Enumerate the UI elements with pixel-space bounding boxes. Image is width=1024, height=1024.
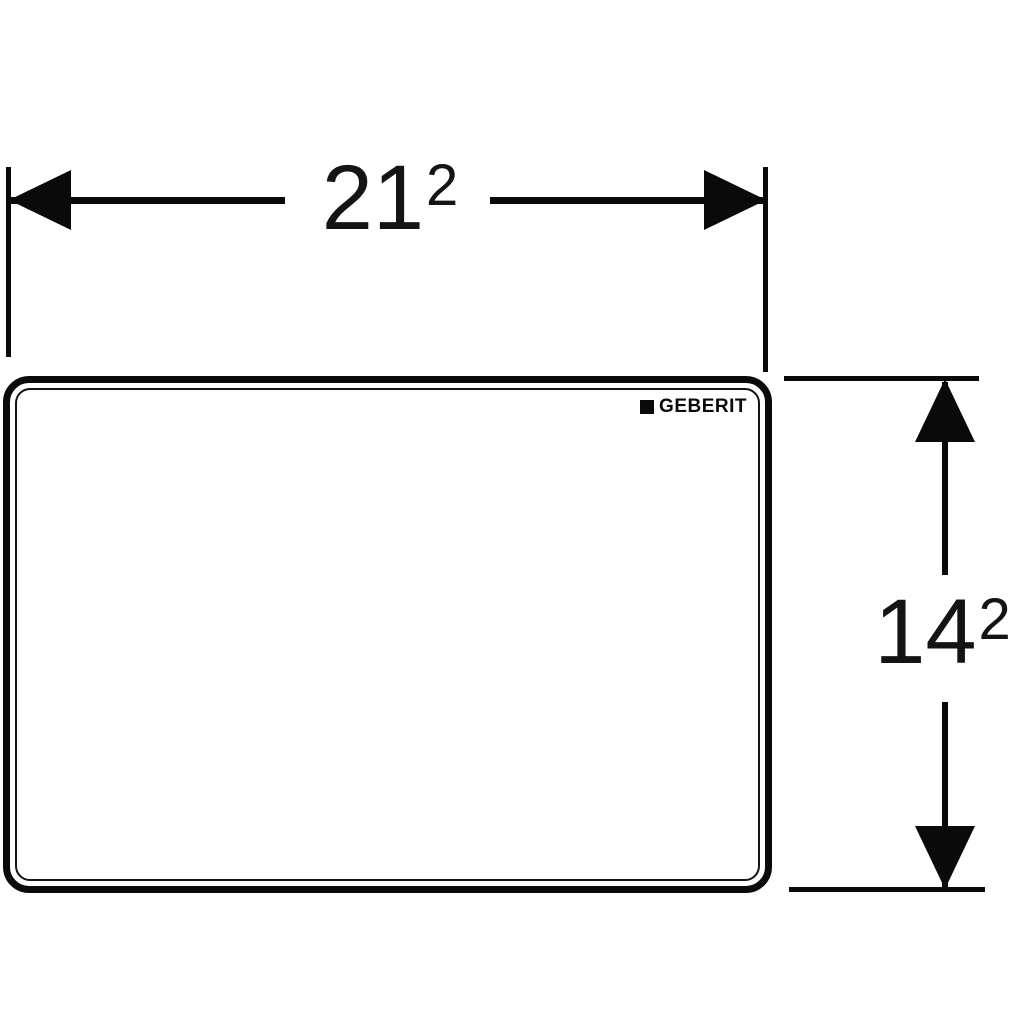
height-dimension-value: 14 <box>874 581 976 683</box>
arrowhead-right-icon <box>704 170 766 230</box>
height-dimension-label: 142 <box>850 586 1024 678</box>
height-dimension-superscript: 2 <box>979 587 1011 652</box>
width-dimension-label: 212 <box>290 152 490 244</box>
technical-drawing-canvas: GEBERIT 212 142 <box>0 0 1024 1024</box>
geberit-logo-text: GEBERIT <box>659 397 747 416</box>
width-dimension-superscript: 2 <box>426 153 458 218</box>
geberit-logo: GEBERIT <box>640 397 747 416</box>
arrowhead-down-icon <box>915 826 975 889</box>
arrowhead-left-icon <box>9 170 71 230</box>
width-dimension-value: 21 <box>322 147 424 249</box>
flush-plate-inner-line <box>15 388 760 881</box>
geberit-logo-square-icon <box>640 400 654 414</box>
arrowhead-up-icon <box>915 379 975 442</box>
flush-plate-outline: GEBERIT <box>3 376 772 893</box>
